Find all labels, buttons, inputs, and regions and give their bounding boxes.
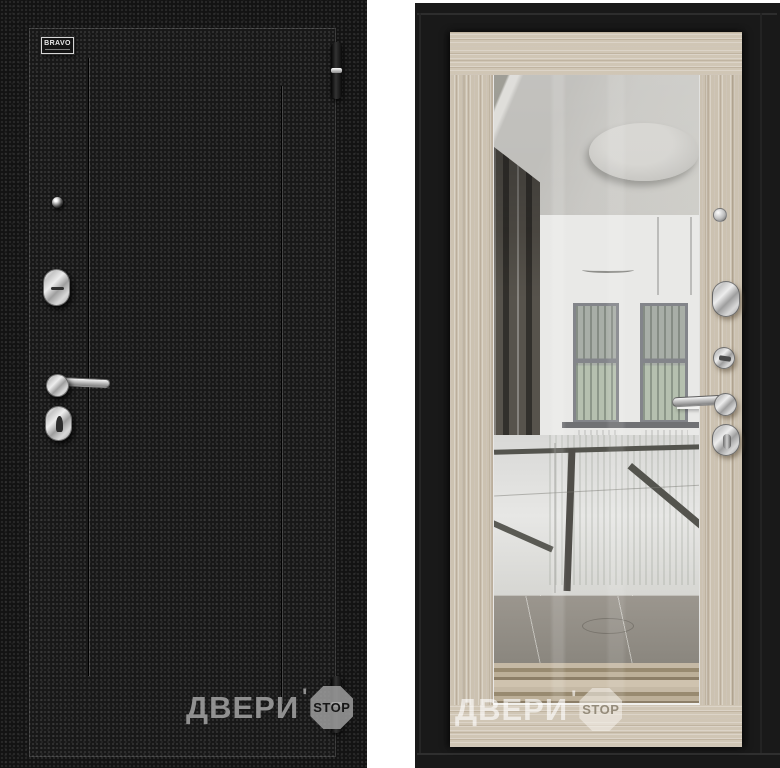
stop-text: STOP bbox=[582, 702, 619, 717]
hinge-band bbox=[331, 68, 342, 73]
lock-cylinder-cover bbox=[43, 269, 70, 306]
frame-sill-line bbox=[417, 753, 780, 755]
watermark-exterior: ДВЕРИ ' STOP bbox=[186, 686, 353, 729]
exterior-handle-rosette bbox=[46, 374, 69, 397]
frame-highlight-right bbox=[760, 13, 762, 753]
thumbturn-bar bbox=[719, 355, 732, 362]
exterior-door-leaf: BRAVO bbox=[29, 28, 336, 757]
interior-door-photo[interactable]: ДВЕРИ ' STOP bbox=[415, 0, 780, 768]
stop-text: STOP bbox=[313, 700, 350, 715]
door-groove-right bbox=[281, 86, 283, 704]
keyhole-escutcheon bbox=[45, 406, 72, 441]
interior-door-leaf bbox=[450, 32, 742, 747]
hinge-top bbox=[331, 42, 342, 99]
watermark-brand-text: ДВЕРИ bbox=[186, 690, 299, 726]
keyhole-icon bbox=[56, 416, 63, 432]
cylinder-slot bbox=[51, 287, 64, 290]
peephole-icon bbox=[52, 197, 63, 208]
frame-highlight-left bbox=[419, 13, 421, 755]
stop-octagon-icon: STOP bbox=[579, 688, 622, 731]
door-mirror bbox=[493, 75, 700, 705]
door-product-photo: BRAVO ДВЕРИ ' STOP bbox=[0, 0, 780, 768]
watermark-brand-text: ДВЕРИ bbox=[455, 692, 568, 728]
watermark-apostrophe: ' bbox=[302, 684, 307, 710]
mirror-glare bbox=[494, 75, 700, 705]
thumb-slot bbox=[723, 434, 731, 449]
stop-octagon-icon: STOP bbox=[310, 686, 353, 729]
interior-lower-escutcheon bbox=[712, 424, 740, 456]
photo-divider bbox=[367, 0, 415, 768]
exterior-door-photo[interactable]: BRAVO ДВЕРИ ' STOP bbox=[0, 0, 367, 768]
door-groove-left bbox=[88, 58, 90, 676]
frame-highlight-top bbox=[417, 13, 777, 15]
screw-cap-icon bbox=[713, 208, 727, 222]
wood-rail-top bbox=[450, 32, 742, 75]
watermark-interior: ДВЕРИ ' STOP bbox=[455, 688, 622, 731]
watermark-apostrophe: ' bbox=[571, 686, 576, 712]
thumbturn-knob bbox=[713, 347, 735, 369]
photo-margin-top bbox=[415, 0, 780, 3]
interior-cylinder-escutcheon bbox=[712, 281, 740, 317]
interior-handle-rosette bbox=[714, 393, 737, 416]
brand-badge: BRAVO bbox=[41, 37, 74, 54]
